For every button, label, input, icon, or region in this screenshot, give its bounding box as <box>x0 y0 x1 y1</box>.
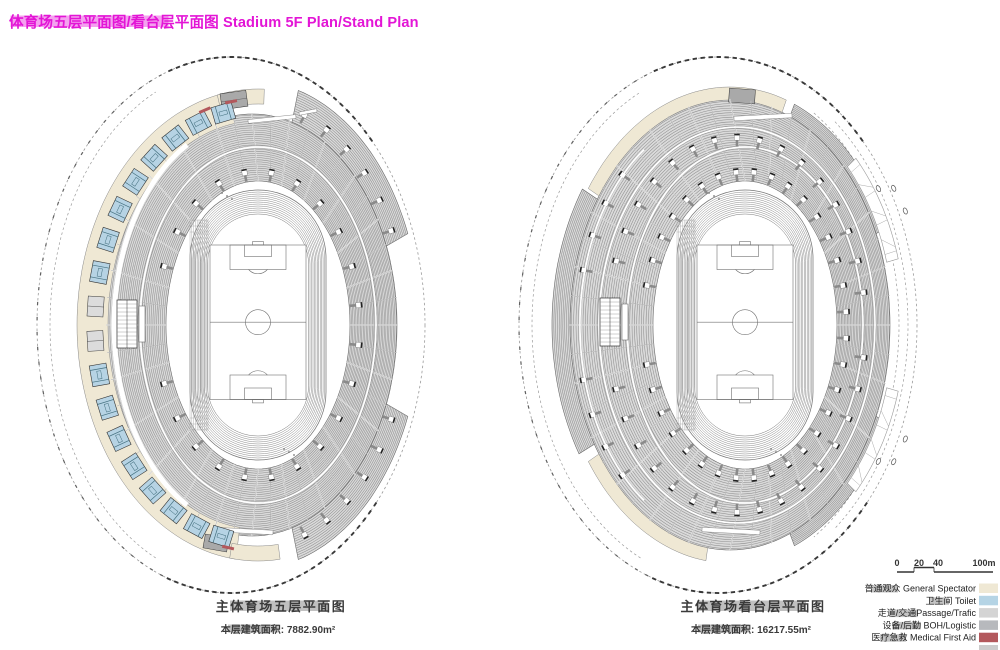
svg-text:100m: 100m <box>972 558 995 568</box>
svg-text:主体育场看台层平面图: 主体育场看台层平面图 <box>680 599 825 614</box>
svg-text:走道/交通Passage/Trafic: 走道/交通Passage/Trafic <box>878 607 977 618</box>
svg-text:20: 20 <box>914 558 924 568</box>
svg-text:0: 0 <box>894 558 899 568</box>
svg-text:主体育场五层平面图: 主体育场五层平面图 <box>216 599 347 614</box>
svg-text:设备/后勤 BOH/Logistic: 设备/后勤 BOH/Logistic <box>882 619 976 630</box>
svg-text:普通观众 General Spectator: 普通观众 General Spectator <box>864 583 976 594</box>
svg-text:40: 40 <box>933 558 943 568</box>
svg-text:体育场五层平面图/看台层平面图 Stadium 5F Pla: 体育场五层平面图/看台层平面图 Stadium 5F Plan/Stand Pl… <box>9 13 419 31</box>
svg-text:本层建筑面积: 16217.55m²: 本层建筑面积: 16217.55m² <box>691 623 812 636</box>
svg-text:本层建筑面积: 7882.90m²: 本层建筑面积: 7882.90m² <box>221 623 336 636</box>
svg-text:卫生间 Toilet: 卫生间 Toilet <box>925 595 976 606</box>
svg-text:医疗急救 Medical First Aid: 医疗急救 Medical First Aid <box>871 632 976 643</box>
